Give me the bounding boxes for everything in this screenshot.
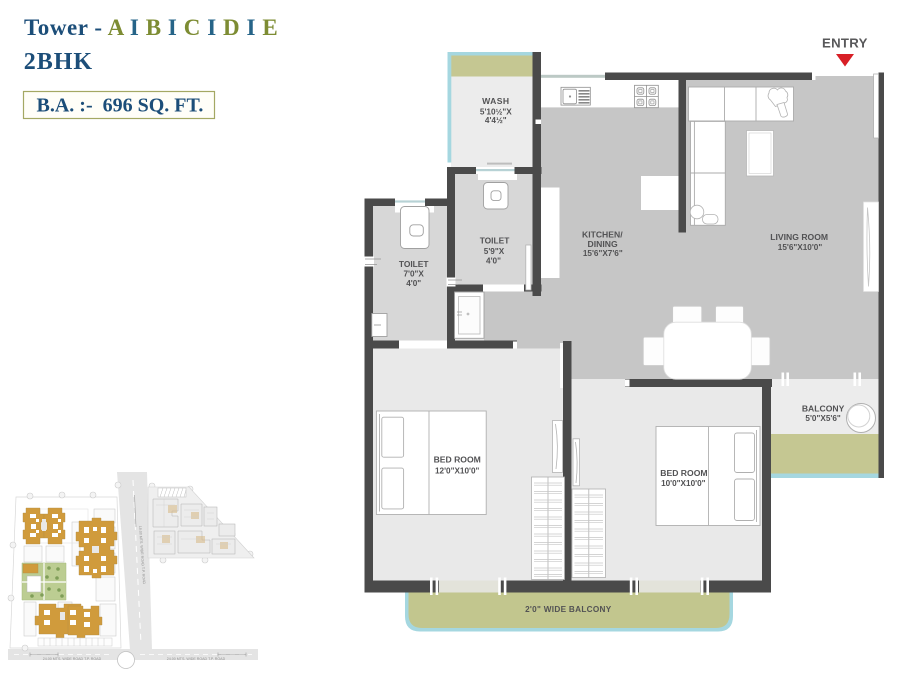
svg-text:15'6"X7'6": 15'6"X7'6"	[583, 249, 623, 258]
svg-text:DINING: DINING	[588, 239, 618, 249]
svg-text:5'10½"X: 5'10½"X	[480, 107, 512, 116]
svg-text:Tower - A I B I C I D I E: Tower - A I B I C I D I E	[24, 15, 278, 40]
svg-text:24.00 MTS. WIDE ROAD T.P. ROAD: 24.00 MTS. WIDE ROAD T.P. ROAD	[43, 657, 102, 661]
svg-text:BED ROOM: BED ROOM	[434, 455, 481, 465]
svg-text:10'0"X10'0": 10'0"X10'0"	[661, 479, 706, 488]
svg-text:4'4½": 4'4½"	[485, 116, 507, 125]
svg-text:BED ROOM: BED ROOM	[660, 468, 707, 478]
svg-text:5'0"X5'6": 5'0"X5'6"	[805, 414, 840, 423]
svg-text:LIVING ROOM: LIVING ROOM	[770, 232, 828, 242]
svg-text:2BHK: 2BHK	[24, 49, 93, 75]
svg-text:4'0": 4'0"	[406, 279, 421, 288]
svg-text:TOILET: TOILET	[480, 235, 511, 245]
svg-text:ENTRY: ENTRY	[822, 36, 868, 51]
svg-text:WASH: WASH	[482, 96, 509, 106]
svg-text:12'0"X10'0": 12'0"X10'0"	[435, 466, 480, 475]
svg-text:BALCONY: BALCONY	[802, 404, 845, 414]
svg-text:TOILET: TOILET	[399, 259, 430, 269]
svg-text:B.A. :- 696 SQ. FT.: B.A. :- 696 SQ. FT.	[37, 95, 204, 117]
svg-text:4'0": 4'0"	[486, 256, 501, 265]
svg-text:7'0"X: 7'0"X	[403, 270, 424, 279]
svg-text:24.00 MTS. WIDE ROAD T.P. ROAD: 24.00 MTS. WIDE ROAD T.P. ROAD	[167, 657, 226, 661]
svg-text:2'0" WIDE BALCONY: 2'0" WIDE BALCONY	[525, 605, 612, 614]
svg-text:15'6"X10'0": 15'6"X10'0"	[778, 243, 823, 252]
svg-text:5'9"X: 5'9"X	[484, 247, 505, 256]
